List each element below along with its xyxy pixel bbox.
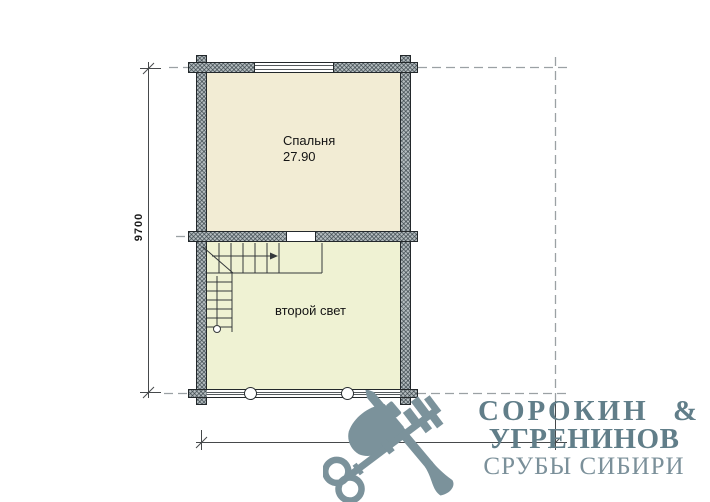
second-light-name: второй свет [275, 303, 346, 318]
dimension-vertical-value: 9700 [133, 213, 145, 241]
wall-right [400, 55, 411, 405]
logo-line-2: УГРЕНИНОВ [478, 425, 690, 453]
floor-plan-canvas: Спальня 27.90 второй свет 9700 10700 [0, 0, 710, 502]
second-light-label: второй свет [275, 303, 346, 319]
wall-left [196, 55, 207, 405]
window-glass-line [255, 69, 333, 70]
axe-and-key-icon [323, 390, 475, 502]
bedroom-name: Спальня [283, 133, 335, 149]
opening-middle-wall [286, 231, 316, 242]
dimension-vertical-9700: 9700 [133, 207, 145, 247]
logo-line-1: СОРОКИН & [478, 397, 690, 425]
bedroom-label: Спальня 27.90 [283, 133, 335, 165]
window-glass-line [255, 65, 333, 66]
company-logo-text: СОРОКИН & УГРЕНИНОВ СРУБЫ СИБИРИ [478, 397, 690, 480]
logo-line-3: СРУБЫ СИБИРИ [478, 453, 690, 480]
round-column [244, 387, 257, 400]
bedroom-area: 27.90 [283, 149, 335, 165]
window-top-wall [254, 62, 334, 73]
